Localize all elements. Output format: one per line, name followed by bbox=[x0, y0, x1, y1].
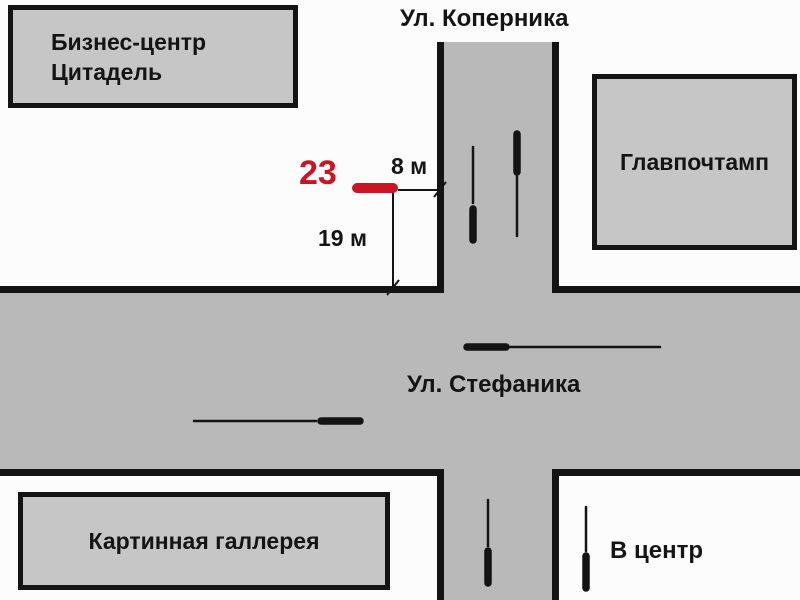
to-center-label: В центр bbox=[610, 538, 703, 564]
road-edge-top-left bbox=[0, 286, 444, 293]
building-business-center: Бизнес-центр Цитадель bbox=[8, 5, 298, 108]
road-edge-kopernika-upper-left bbox=[437, 42, 444, 293]
road-stefanika-surface bbox=[0, 286, 800, 476]
location-marker-bar bbox=[352, 183, 398, 193]
street-map-diagram: Бизнес-центр Цитадель Главпочтамп Картин… bbox=[0, 0, 800, 600]
street-label-kopernika: Ул. Коперника bbox=[400, 6, 568, 32]
measurement-label-8m: 8 м bbox=[391, 153, 427, 179]
road-edge-kopernika-upper-right bbox=[552, 42, 559, 293]
business-center-name-line2: Цитадель bbox=[51, 57, 293, 87]
road-edge-kopernika-lower-left bbox=[437, 469, 444, 600]
location-marker-number: 23 bbox=[299, 156, 337, 190]
measurement-label-19m: 19 м bbox=[318, 225, 367, 251]
building-post-office: Главпочтамп bbox=[592, 74, 797, 250]
post-office-name: Главпочтамп bbox=[620, 147, 769, 177]
art-gallery-name: Картинная галлерея bbox=[89, 526, 320, 556]
business-center-name-line1: Бизнес-центр bbox=[51, 27, 293, 57]
road-edge-top-right bbox=[552, 286, 800, 293]
road-edge-bottom-right bbox=[552, 469, 800, 476]
road-edge-kopernika-lower-right bbox=[552, 469, 559, 600]
street-label-stefanika: Ул. Стефаника bbox=[407, 372, 580, 398]
road-kopernika-surface bbox=[437, 42, 559, 600]
road-edge-bottom-left bbox=[0, 469, 444, 476]
building-art-gallery: Картинная галлерея bbox=[18, 492, 390, 590]
